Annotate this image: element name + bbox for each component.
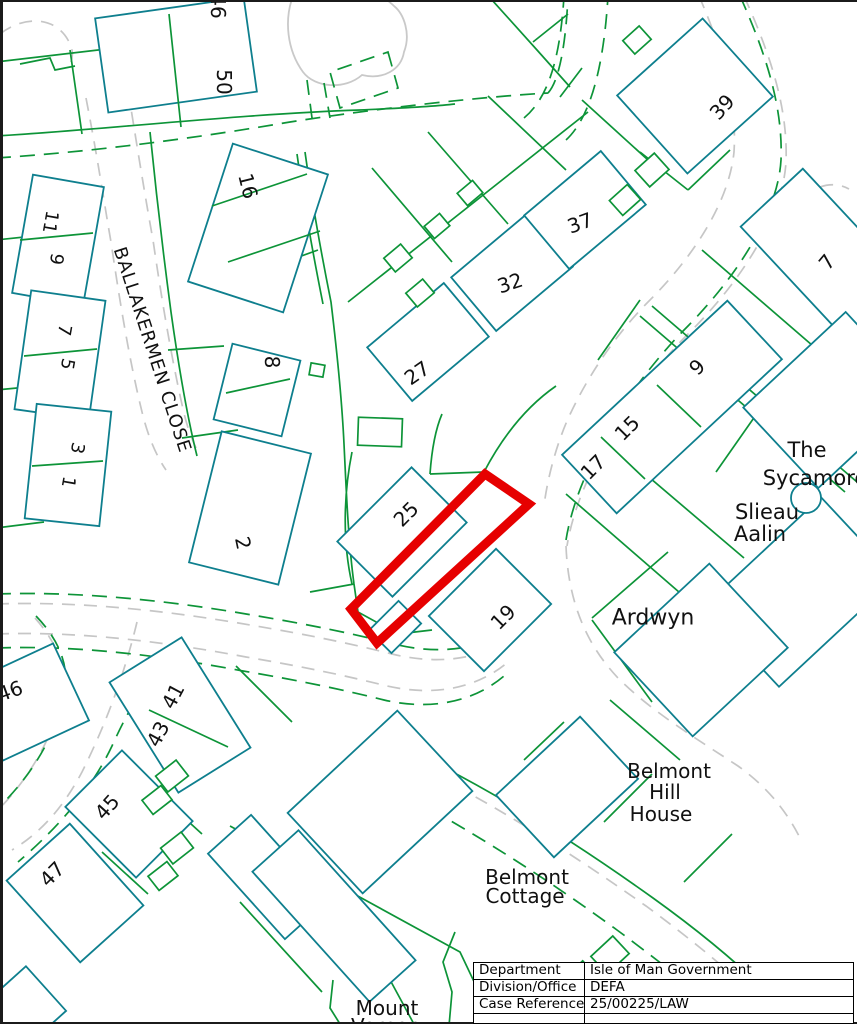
table-value-cell: 25/00225/LAW xyxy=(585,997,853,1013)
table-label-cell: Department xyxy=(474,963,585,979)
buildings-layer xyxy=(0,0,857,1024)
map-label-ballakermen-close: BALLAKERMEN CLOSE xyxy=(109,244,195,455)
map-label-aalin: Aalin xyxy=(734,522,786,546)
table-value-cell: Isle of Man Government xyxy=(585,963,853,979)
map-label-11: 11 xyxy=(38,209,63,235)
table-value-cell xyxy=(585,1014,853,1024)
table-row-division: Division/Office DEFA xyxy=(474,980,853,997)
table-value-cell: DEFA xyxy=(585,980,853,996)
table-label-cell: Division/Office xyxy=(474,980,585,996)
map-label-46: 46 xyxy=(206,0,230,19)
map-label-slieau: Slieau xyxy=(735,500,799,524)
table-row-case-reference: Case Reference 25/00225/LAW xyxy=(474,997,853,1014)
map-label-50: 50 xyxy=(212,69,236,94)
trees-layer xyxy=(288,0,407,85)
map-label-house: House xyxy=(630,802,693,826)
map-label-sycamore: Sycamore xyxy=(763,466,857,490)
map-label-8: 8 xyxy=(260,356,284,369)
map-canvas: 465016119753182BALLAKERMEN CLOSE27323739… xyxy=(0,0,857,1024)
table-label-cell xyxy=(474,1014,585,1024)
table-row-partial xyxy=(474,1014,853,1024)
table-row-department: Department Isle of Man Government xyxy=(474,963,853,980)
map-label-ardwyn: Ardwyn xyxy=(612,606,695,631)
table-label-cell: Case Reference xyxy=(474,997,585,1013)
map-label-the: The xyxy=(786,438,826,462)
planning-map-extract: 465016119753182BALLAKERMEN CLOSE27323739… xyxy=(0,0,857,1024)
map-label-cottage: Cottage xyxy=(485,884,564,908)
map-label-hill: Hill xyxy=(649,780,681,804)
case-info-table: Department Isle of Man Government Divisi… xyxy=(473,962,854,1024)
